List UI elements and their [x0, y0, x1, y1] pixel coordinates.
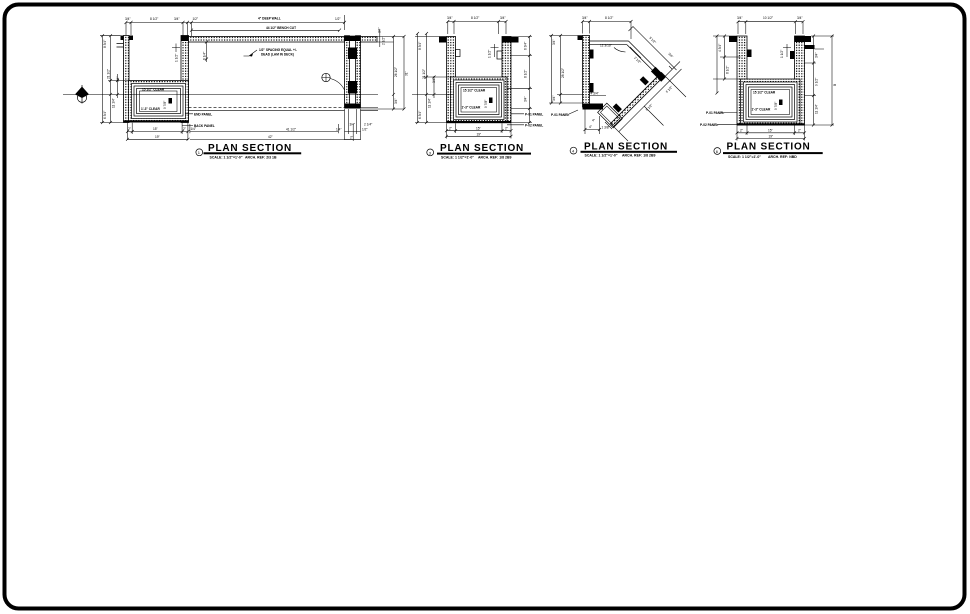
svg-text:21 1/2": 21 1/2" — [107, 69, 111, 79]
svg-text:1 1/2": 1 1/2" — [780, 50, 784, 58]
svg-text:12 3/16": 12 3/16" — [600, 44, 612, 48]
svg-text:2": 2" — [183, 127, 186, 131]
svg-text:9 7/8": 9 7/8" — [774, 102, 778, 110]
svg-text:10 1/2": 10 1/2" — [763, 16, 773, 20]
svg-text:8 1/2": 8 1/2" — [605, 16, 613, 20]
svg-text:8 1/2": 8 1/2" — [150, 17, 158, 21]
svg-text:3/4": 3/4" — [432, 77, 436, 83]
svg-text:3/4": 3/4" — [737, 16, 743, 20]
svg-text:8 1/2": 8 1/2" — [471, 16, 479, 20]
svg-text:ARCH. REF: 1/8 2B9: ARCH. REF: 1/8 2B9 — [622, 154, 656, 158]
svg-text:3/4": 3/4" — [447, 16, 453, 20]
svg-text:44 1/2" BENCH CUT: 44 1/2" BENCH CUT — [266, 26, 296, 30]
svg-text:3/4": 3/4" — [552, 39, 556, 45]
svg-text:19": 19" — [155, 135, 160, 139]
svg-text:2": 2" — [505, 127, 508, 131]
svg-text:1/2": 1/2" — [193, 17, 199, 21]
svg-text:2 1/4": 2 1/4" — [364, 122, 372, 126]
svg-text:6 3/4": 6 3/4" — [418, 111, 422, 119]
svg-text:11 1/4": 11 1/4" — [112, 98, 116, 108]
svg-text:6 3/4": 6 3/4" — [103, 111, 107, 119]
svg-text:42": 42" — [268, 135, 273, 139]
svg-text:BACK PANEL: BACK PANEL — [194, 124, 215, 128]
svg-text:P-01 PANEL: P-01 PANEL — [525, 113, 543, 117]
svg-text:PLAN SECTION: PLAN SECTION — [727, 142, 811, 153]
svg-text:3/4": 3/4" — [378, 27, 382, 33]
svg-text:15": 15" — [768, 129, 773, 133]
svg-text:SCALE: 1 1/2"=1'-0": SCALE: 1 1/2"=1'-0" — [210, 155, 243, 159]
svg-text:3/4": 3/4" — [797, 16, 803, 20]
svg-text:9 7/8": 9 7/8" — [484, 100, 488, 108]
svg-text:SCALE: 1 1/2"=1'-0": SCALE: 1 1/2"=1'-0" — [441, 155, 474, 159]
svg-text:19": 19" — [769, 134, 774, 138]
svg-text:15 1/2" CLEAR: 15 1/2" CLEAR — [753, 91, 776, 95]
svg-text:31": 31" — [405, 71, 409, 76]
svg-text:1'-3" CLEAR: 1'-3" CLEAR — [462, 106, 481, 110]
svg-text:15": 15" — [476, 127, 481, 131]
svg-text:ARCH. REF: 1/8 2B9: ARCH. REF: 1/8 2B9 — [478, 155, 512, 159]
svg-text:2": 2" — [128, 127, 131, 131]
svg-text:8 1/2": 8 1/2" — [524, 70, 528, 78]
svg-text:3/4": 3/4" — [394, 98, 398, 104]
svg-text:SCALE: 1 1/2"=1'-0": SCALE: 1 1/2"=1'-0" — [728, 155, 761, 159]
svg-text:2": 2" — [798, 129, 801, 133]
svg-text:4 3/4": 4 3/4" — [718, 44, 722, 52]
svg-text:1/2" SPACING EQUAL +/-: 1/2" SPACING EQUAL +/- — [259, 48, 297, 52]
svg-text:2": 2" — [350, 135, 353, 139]
svg-text:3/4": 3/4" — [582, 16, 588, 20]
svg-text:28 1/2": 28 1/2" — [561, 68, 565, 78]
svg-text:END PANEL: END PANEL — [194, 113, 212, 117]
svg-text:3/4": 3/4" — [815, 52, 819, 58]
svg-text:1'-3" CLEAR: 1'-3" CLEAR — [752, 108, 771, 112]
svg-text:ARCH. REF: NBD: ARCH. REF: NBD — [768, 155, 797, 159]
svg-text:6 1/4": 6 1/4" — [203, 52, 207, 60]
svg-text:1 1/2": 1 1/2" — [488, 50, 492, 58]
svg-text:9 1/2": 9 1/2" — [815, 78, 819, 86]
svg-text:1/2": 1/2" — [362, 127, 368, 131]
svg-text:15 1/2" CLEAR: 15 1/2" CLEAR — [142, 88, 165, 92]
svg-text:1'-3" CLEAR: 1'-3" CLEAR — [141, 107, 160, 111]
svg-text:4 3/4": 4 3/4" — [591, 92, 599, 96]
svg-text:ARCH. REF: 2/3 1B: ARCH. REF: 2/3 1B — [245, 155, 277, 159]
svg-text:6 3/4": 6 3/4" — [524, 42, 528, 50]
svg-text:41 1/2": 41 1/2" — [286, 127, 296, 131]
svg-text:P-02 PANEL: P-02 PANEL — [700, 123, 718, 127]
svg-text:3/4": 3/4" — [524, 96, 528, 102]
svg-text:21 1/2": 21 1/2" — [422, 69, 426, 79]
svg-text:8 1/2": 8 1/2" — [726, 66, 730, 74]
svg-text:1 3/8": 1 3/8" — [602, 126, 610, 130]
svg-text:11 1/4": 11 1/4" — [428, 98, 432, 108]
svg-text:11 1/4": 11 1/4" — [815, 104, 819, 114]
svg-text:P-01 PANEL: P-01 PANEL — [551, 113, 569, 117]
svg-text:2": 2" — [449, 127, 452, 131]
svg-text:3/4": 3/4" — [350, 122, 356, 126]
svg-text:1/4": 1/4" — [336, 127, 342, 131]
svg-text:P-01 PANEL: P-01 PANEL — [706, 111, 724, 115]
svg-text:PLAN SECTION: PLAN SECTION — [584, 141, 668, 152]
svg-text:4" DEEP WALL: 4" DEEP WALL — [258, 17, 281, 21]
svg-text:9 7/8": 9 7/8" — [163, 101, 167, 109]
svg-text:1/2": 1/2" — [335, 17, 341, 21]
svg-text:15 1/2" CLEAR: 15 1/2" CLEAR — [463, 89, 486, 93]
svg-text:SCALE: 1 1/2"=1'-0": SCALE: 1 1/2"=1'-0" — [585, 154, 618, 158]
svg-text:3/4": 3/4" — [125, 17, 131, 21]
svg-text:19": 19" — [477, 132, 482, 136]
svg-text:3/4": 3/4" — [552, 95, 556, 101]
svg-text:PLAN SECTION: PLAN SECTION — [440, 143, 524, 154]
svg-text:8 3/4": 8 3/4" — [103, 40, 107, 48]
svg-text:DEAD (LAM IN DECK): DEAD (LAM IN DECK) — [261, 53, 294, 57]
svg-text:P-02 PANEL: P-02 PANEL — [525, 124, 543, 128]
svg-text:2": 2" — [740, 129, 743, 133]
svg-text:3/4": 3/4" — [500, 16, 506, 20]
svg-text:1 1/2": 1 1/2" — [175, 54, 179, 62]
svg-text:2 1/2": 2 1/2" — [382, 37, 386, 45]
svg-text:3/4": 3/4" — [116, 76, 120, 82]
svg-text:4": 4" — [592, 119, 595, 123]
svg-text:3/4": 3/4" — [174, 17, 180, 21]
svg-text:B: B — [833, 84, 837, 86]
svg-text:26 1/2": 26 1/2" — [394, 67, 398, 77]
svg-text:4": 4" — [589, 125, 592, 129]
svg-text:15": 15" — [153, 127, 158, 131]
svg-text:8 3/4": 8 3/4" — [418, 42, 422, 50]
